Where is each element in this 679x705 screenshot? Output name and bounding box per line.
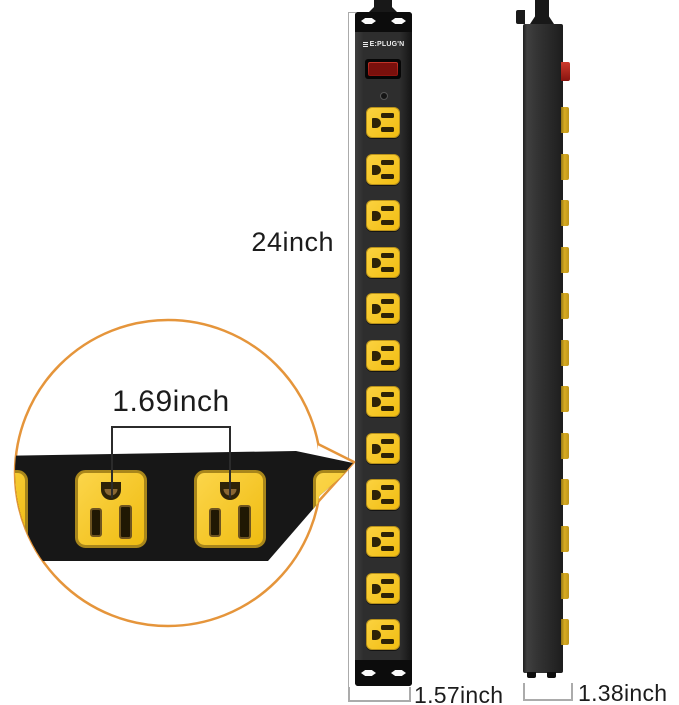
outlet-ground-hole: [372, 630, 381, 640]
mounting-bracket-top: [355, 12, 412, 32]
power-switch: [365, 59, 401, 79]
outlet-slot: [381, 639, 394, 644]
side-outlet-edge: [561, 154, 569, 180]
outlet-slot: [381, 174, 394, 179]
outlet-slot: [381, 532, 394, 537]
power-switch-core: [369, 63, 397, 75]
outlet-ground-hole: [372, 490, 381, 500]
side-outlet-edge: [561, 293, 569, 319]
brand-logo: E:PLUG'N: [355, 41, 412, 48]
keyhole-slot-icon: [391, 670, 406, 676]
side-outlet-edge: [561, 247, 569, 273]
outlet-ground-hole: [372, 165, 381, 175]
outlet-slot: [381, 406, 394, 411]
outlet-slot: [381, 113, 394, 118]
front-width-label: 1.57inch: [414, 682, 503, 705]
outlet-slot: [381, 160, 394, 165]
outlet-slot: [381, 220, 394, 225]
outlet: [366, 107, 400, 138]
outlet: [366, 526, 400, 557]
spacing-dimension-line: [112, 427, 230, 498]
outlet-slot: [381, 453, 394, 458]
outlet-slot: [381, 299, 394, 304]
outlet-slot: [381, 346, 394, 351]
outlet: [366, 573, 400, 604]
outlet: [366, 200, 400, 231]
side-outlet-edge: [561, 526, 569, 552]
height-label: 24inch: [228, 227, 334, 258]
side-depth-dimension-bracket: [523, 683, 573, 701]
side-outlet-edge: [561, 573, 569, 599]
front-width-dimension-bracket: [348, 687, 411, 702]
side-outlet-edge: [561, 200, 569, 226]
spacing-label: 1.69inch: [112, 385, 229, 418]
outlet-ground-hole: [372, 211, 381, 221]
outlet-ground-hole: [372, 537, 381, 547]
outlet-ground-hole: [372, 118, 381, 128]
callout-outlet: [196, 472, 265, 547]
outlet-slot: [381, 127, 394, 132]
height-dimension-line: [348, 12, 349, 687]
power-cord-side-flare: [530, 16, 554, 24]
outlet-slot: [381, 625, 394, 630]
screw-icon: [380, 92, 388, 100]
outlet-ground-hole: [372, 258, 381, 268]
keyhole-slot-icon: [391, 18, 406, 24]
keyhole-slot-icon: [361, 670, 376, 676]
outlet-slot: [381, 253, 394, 258]
outlet-slot: [381, 206, 394, 211]
keyhole-slot-icon: [361, 18, 376, 24]
height-dimension-tick: [348, 12, 356, 13]
outlet-slot: [381, 267, 394, 272]
outlet: [366, 479, 400, 510]
outlet-slot: [381, 593, 394, 598]
detail-callout: 1.69inch: [0, 0, 679, 705]
callout-outlet: [77, 472, 146, 547]
outlet: [366, 154, 400, 185]
outlet: [366, 340, 400, 371]
outlet: [366, 386, 400, 417]
bottom-foot: [527, 672, 536, 678]
brand-name: E:PLUG'N: [370, 41, 405, 48]
power-strip-side-view: [523, 24, 563, 673]
callout-strip-band: [0, 451, 353, 561]
callout-circle: [15, 320, 321, 626]
outlet-slot: [381, 499, 394, 504]
outlet-slot: [381, 579, 394, 584]
brand-stripes-icon: [363, 44, 368, 45]
outlet-slot: [381, 360, 394, 365]
side-outlet-edge: [561, 479, 569, 505]
side-outlet-edge: [561, 107, 569, 133]
outlet-slot: [381, 313, 394, 318]
outlet-slot: [381, 546, 394, 551]
side-outlet-edge: [561, 433, 569, 459]
side-outlet-edge: [561, 386, 569, 412]
outlet-ground-hole: [372, 397, 381, 407]
outlet-ground-hole: [372, 351, 381, 361]
mounting-bracket-bottom: [355, 660, 412, 686]
outlet: [366, 619, 400, 650]
bottom-foot: [547, 672, 556, 678]
mounting-bracket-side-edge: [516, 10, 525, 24]
outlet-ground-hole: [372, 584, 381, 594]
side-outlet-edge: [561, 340, 569, 366]
outlet: [366, 293, 400, 324]
outlet-slot: [381, 485, 394, 490]
product-dimension-diagram: E:PLUG'N 24inch 1.57inch 1.38inch: [0, 0, 679, 705]
power-switch-side-edge: [561, 62, 570, 81]
outlet: [366, 433, 400, 464]
outlet-ground-hole: [372, 444, 381, 454]
power-strip-front-view: E:PLUG'N: [355, 12, 412, 686]
outlet: [366, 247, 400, 278]
outlet-slot: [381, 392, 394, 397]
outlet-slot: [381, 439, 394, 444]
side-outlet-edge: [561, 619, 569, 645]
side-depth-label: 1.38inch: [578, 680, 667, 705]
callout-outlet-partial: [0, 472, 27, 547]
outlet-ground-hole: [372, 304, 381, 314]
